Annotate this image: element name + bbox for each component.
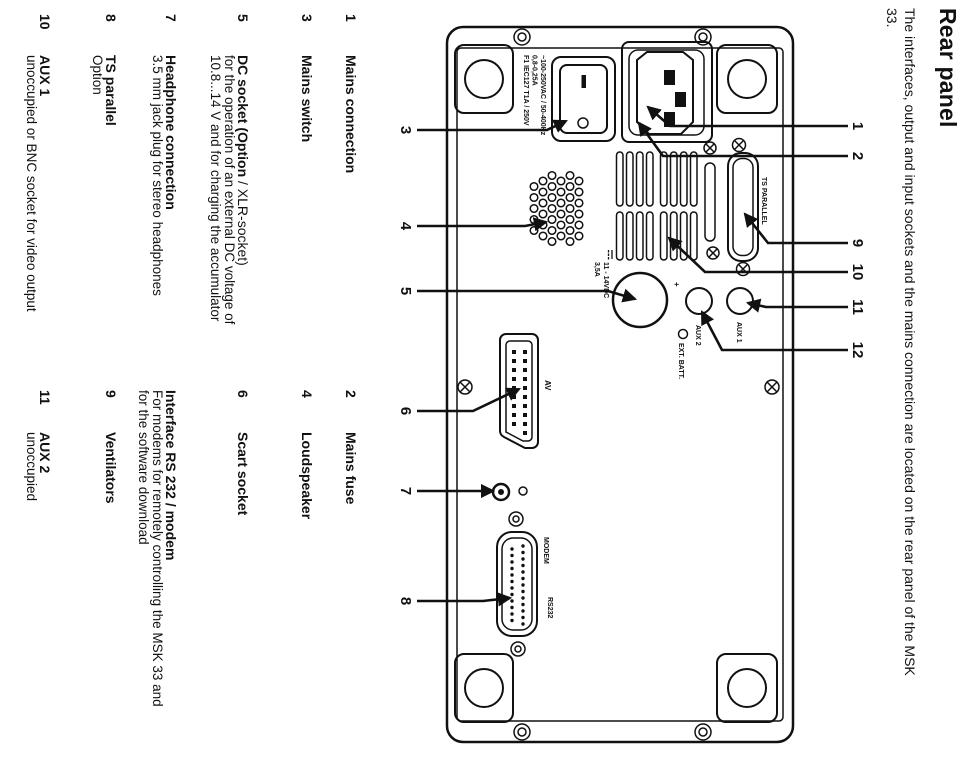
svg-text:12: 12 bbox=[849, 342, 866, 359]
svg-text:EXT. BATT.: EXT. BATT. bbox=[677, 343, 684, 379]
screw-icon bbox=[458, 380, 472, 394]
svg-text:11 - 14VDC: 11 - 14VDC bbox=[602, 262, 609, 298]
dc-symbol-icon bbox=[609, 250, 613, 260]
legend-item-desc: Option bbox=[90, 55, 105, 95]
svg-text:AUX 1: AUX 1 bbox=[735, 322, 742, 343]
headphone-jack bbox=[493, 484, 527, 500]
svg-text:AV: AV bbox=[543, 380, 552, 391]
legend-item-number: 1 bbox=[343, 14, 359, 22]
legend-item-desc: unoccupied bbox=[24, 432, 39, 501]
legend-item-label: Mains fuse bbox=[343, 432, 359, 504]
ts-parallel-connector: TS PARALLEL bbox=[728, 139, 767, 276]
legend-item-number: 10 bbox=[37, 14, 53, 30]
svg-text:0,8-0,25A: 0,8-0,25A bbox=[531, 55, 538, 86]
legend-item-label: DC socket (Option / XLR-socket) bbox=[235, 55, 251, 266]
legend-item-desc: unoccupied or BNC socket for video outpu… bbox=[24, 55, 39, 312]
screw-icon bbox=[737, 263, 750, 276]
svg-text:6: 6 bbox=[397, 407, 414, 415]
legend-item-desc: for the software download bbox=[136, 390, 151, 545]
screw-icon bbox=[733, 139, 746, 152]
svg-text:~100-250VAC / 50-400Hz: ~100-250VAC / 50-400Hz bbox=[539, 55, 546, 136]
legend-item-label: Scart socket bbox=[235, 432, 251, 515]
legend-item-number: 11 bbox=[37, 390, 53, 405]
svg-text:7: 7 bbox=[397, 487, 414, 495]
loudspeaker-grille bbox=[530, 172, 583, 246]
legend-item-label: Mains connection bbox=[343, 55, 359, 173]
dc-socket: + 11 - 14VDC 3,5A bbox=[593, 250, 681, 327]
svg-text:11: 11 bbox=[849, 299, 866, 315]
legend-item-desc: 3.5 mm jack plug for stereo headphones bbox=[150, 55, 165, 296]
screw-icon bbox=[707, 247, 719, 259]
legend-item-desc: For modems for remotely controlling the … bbox=[150, 390, 165, 707]
legend-item-number: 3 bbox=[299, 14, 315, 22]
scart-socket: AV bbox=[500, 334, 552, 448]
corner-mounts bbox=[455, 45, 777, 722]
legend-item-number: 4 bbox=[299, 390, 315, 398]
screw-icon bbox=[704, 142, 716, 154]
legend-item-label: AUX 2 bbox=[37, 432, 53, 473]
svg-text:AUX 2: AUX 2 bbox=[694, 325, 701, 346]
svg-text:5: 5 bbox=[397, 287, 414, 295]
legend-item-number: 9 bbox=[103, 390, 119, 398]
legend-item-label: Loudspeaker bbox=[299, 432, 315, 519]
rear-panel-diagram: ~100-250VAC / 50-400Hz 0,8-0,25A F1 IEC1… bbox=[0, 0, 965, 769]
callout-numbers-bottom: 3 4 5 6 7 8 bbox=[397, 126, 414, 605]
svg-text:10: 10 bbox=[849, 264, 866, 281]
svg-text:3: 3 bbox=[397, 126, 414, 134]
switch-off-mark bbox=[578, 118, 588, 128]
screw-icon bbox=[511, 642, 525, 656]
aux1-socket: AUX 1 bbox=[727, 288, 753, 343]
legend-item-number: 6 bbox=[235, 390, 251, 398]
svg-text:4: 4 bbox=[397, 222, 414, 231]
svg-text:3,5A: 3,5A bbox=[593, 262, 600, 277]
legend-item-number: 8 bbox=[103, 14, 119, 22]
manual-page: Rear panel The interfaces, output and in… bbox=[0, 0, 965, 769]
legend-item-label: Ventilators bbox=[103, 432, 119, 504]
screw-icon bbox=[695, 724, 711, 740]
ventilation-slats bbox=[617, 142, 720, 260]
screw-icon bbox=[765, 380, 779, 394]
screw-icon bbox=[509, 512, 523, 526]
legend-item-label: AUX 1 bbox=[37, 55, 53, 96]
legend-item-label: TS parallel bbox=[103, 55, 119, 126]
svg-text:8: 8 bbox=[397, 597, 414, 605]
ext-batt-indicator: EXT. BATT. bbox=[677, 330, 688, 380]
legend-item-label: Interface RS 232 / modem bbox=[163, 390, 179, 560]
screw-icon bbox=[514, 29, 530, 45]
legend-item-desc: 10.8...14 V and for charging the accumul… bbox=[208, 55, 223, 321]
legend-item-desc: for the operation of an external DC volt… bbox=[222, 55, 237, 324]
mains-switch bbox=[552, 57, 615, 141]
legend-item-label: Mains switch bbox=[299, 55, 315, 142]
svg-text:F1 IEC127 T1A / 250V: F1 IEC127 T1A / 250V bbox=[522, 55, 529, 126]
switch-on-mark bbox=[582, 75, 587, 88]
aux2-socket: AUX 2 bbox=[686, 288, 712, 346]
svg-text:+: + bbox=[672, 282, 681, 287]
svg-text:RS232: RS232 bbox=[546, 597, 553, 619]
legend-item-label: Headphone connection bbox=[163, 55, 179, 210]
svg-text:2: 2 bbox=[849, 152, 866, 160]
svg-text:1: 1 bbox=[849, 122, 866, 130]
svg-text:9: 9 bbox=[849, 239, 866, 247]
callout-numbers-top: 1 2 9 10 11 12 bbox=[849, 122, 866, 359]
screw-icon bbox=[514, 724, 530, 740]
svg-text:MODEM: MODEM bbox=[542, 537, 549, 564]
panel-outline bbox=[447, 27, 793, 742]
legend-item-number: 7 bbox=[163, 14, 179, 22]
modem-rs232-connector: MODEM RS232 bbox=[497, 512, 553, 656]
mains-rating-label: ~100-250VAC / 50-400Hz 0,8-0,25A F1 IEC1… bbox=[522, 55, 546, 136]
svg-text:TS PARALLEL: TS PARALLEL bbox=[760, 177, 767, 225]
legend-item-number: 5 bbox=[235, 14, 251, 22]
legend-item-number: 2 bbox=[343, 390, 359, 398]
